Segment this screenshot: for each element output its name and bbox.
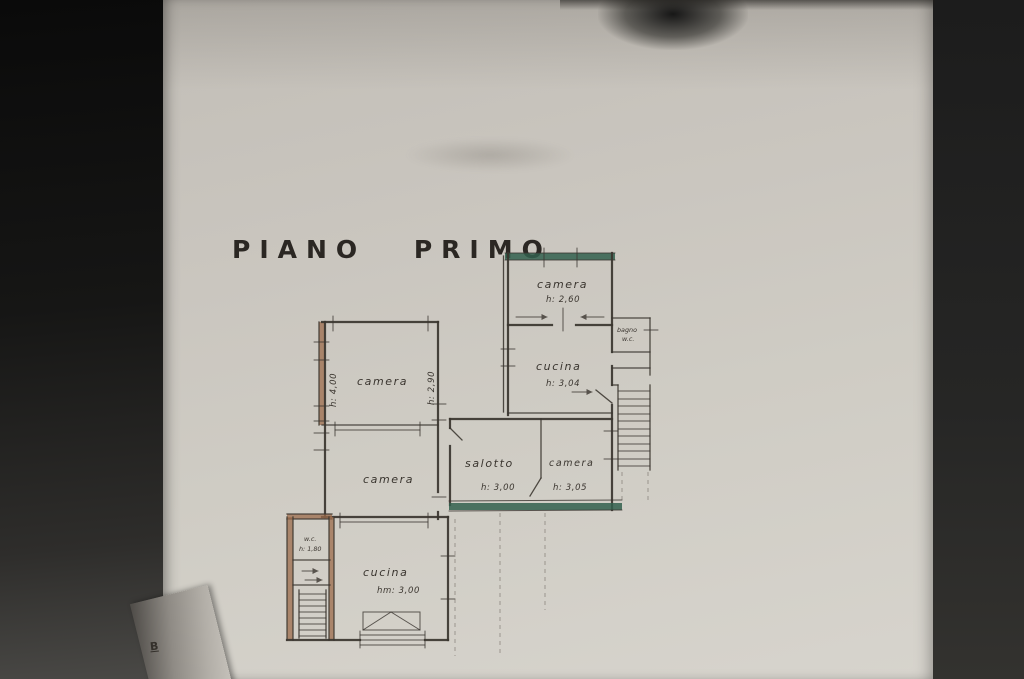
room-label: camera (357, 375, 408, 388)
projection-dashes (455, 513, 545, 656)
room-bagno: bagno w.c. (612, 318, 658, 375)
room-height: h: 2,60 (546, 295, 580, 305)
room-camera-top: camera h: 2,60 (504, 248, 616, 415)
room-height: h: 3,04 (546, 379, 580, 389)
room-label: salotto (465, 457, 514, 470)
room-height: h: 1,80 (299, 545, 321, 553)
room-height: hm: 3,00 (377, 586, 420, 596)
room-sublabel: w.c. (622, 335, 634, 343)
room-height-right: h: 2,90 (427, 371, 437, 405)
room-camera-w: camera (314, 433, 448, 528)
floor-plan-svg: PIANO PRIMO camera h: 2,60 ba (0, 0, 1024, 679)
scanned-floor-plan: B PIANO PRIMO camera h: 2,60 (0, 0, 1024, 679)
room-label: bagno (617, 326, 637, 334)
room-height: h: 3,00 (481, 483, 515, 493)
stair-right (612, 385, 650, 503)
stair-bottom-left (299, 590, 326, 638)
highlighted-wall-green (449, 500, 622, 511)
room-height: h: 3,05 (553, 483, 587, 493)
room-label: w.c. (304, 535, 316, 543)
room-height-left: h: 4,00 (329, 373, 339, 407)
room-camera-e: camera h: 3,05 (530, 419, 618, 496)
room-label: cucina (536, 360, 581, 373)
room-label: cucina (363, 566, 408, 579)
room-wc: w.c. h: 1,80 (287, 514, 334, 640)
room-label: camera (363, 473, 414, 486)
room-label: camera (549, 458, 594, 469)
room-label: camera (537, 278, 588, 291)
room-camera-nw: camera h: 4,00 h: 2,90 (314, 316, 446, 517)
